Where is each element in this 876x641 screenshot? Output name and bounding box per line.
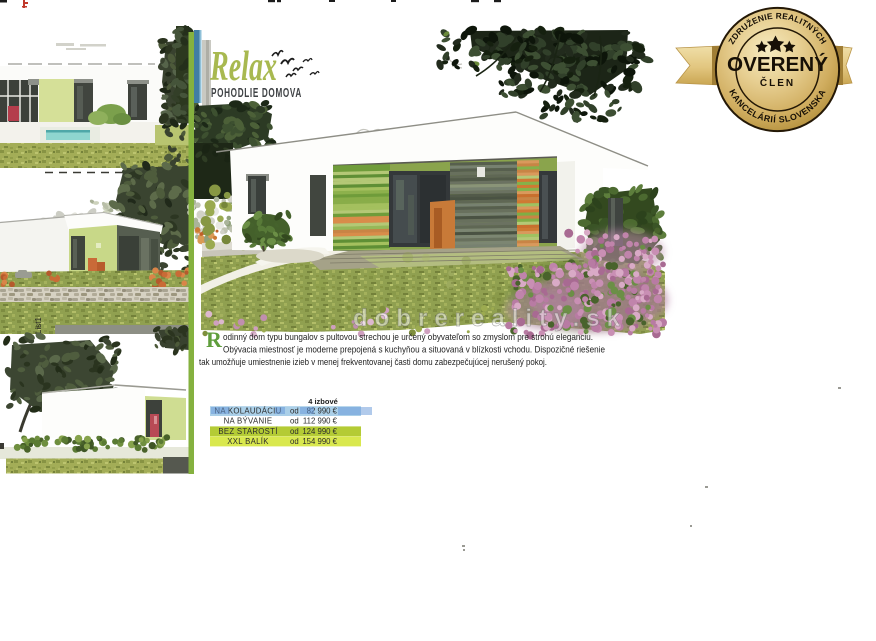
- svg-text:R: R: [206, 327, 223, 352]
- svg-text:od: od: [290, 427, 299, 436]
- svg-text:124 990 €: 124 990 €: [302, 427, 337, 436]
- svg-text:BEZ STAROSTÍ: BEZ STAROSTÍ: [218, 427, 278, 436]
- svg-text:154 990 €: 154 990 €: [302, 437, 337, 446]
- svg-text:POHODLIE DOMOVA: POHODLIE DOMOVA: [211, 86, 302, 100]
- svg-text:Relax: Relax: [209, 44, 277, 90]
- svg-text:tak umožňuje umiestnenie izieb: tak umožňuje umiestnenie izieb v menej f…: [199, 357, 547, 367]
- svg-text:od: od: [290, 407, 299, 416]
- svg-text:odinný dom typu bungalov s pul: odinný dom typu bungalov s pultovou stre…: [223, 332, 593, 342]
- svg-text:OVERENÝ: OVERENÝ: [727, 52, 828, 76]
- svg-text:Obývacia miestnosť je moderne: Obývacia miestnosť je moderne prepojená …: [223, 345, 605, 355]
- svg-text:112 990 €: 112 990 €: [303, 417, 338, 426]
- svg-text:ČLEN: ČLEN: [760, 76, 795, 89]
- svg-text:NA BÝVANIE: NA BÝVANIE: [224, 417, 273, 426]
- svg-text:od: od: [290, 417, 299, 426]
- svg-text:List1: List1: [34, 317, 43, 334]
- svg-text:4 izbové: 4 izbové: [308, 397, 338, 406]
- svg-text:dobrereality.sk: dobrereality.sk: [353, 305, 627, 332]
- svg-text:od: od: [290, 437, 299, 446]
- svg-text:XXL BALÍK: XXL BALÍK: [227, 437, 269, 446]
